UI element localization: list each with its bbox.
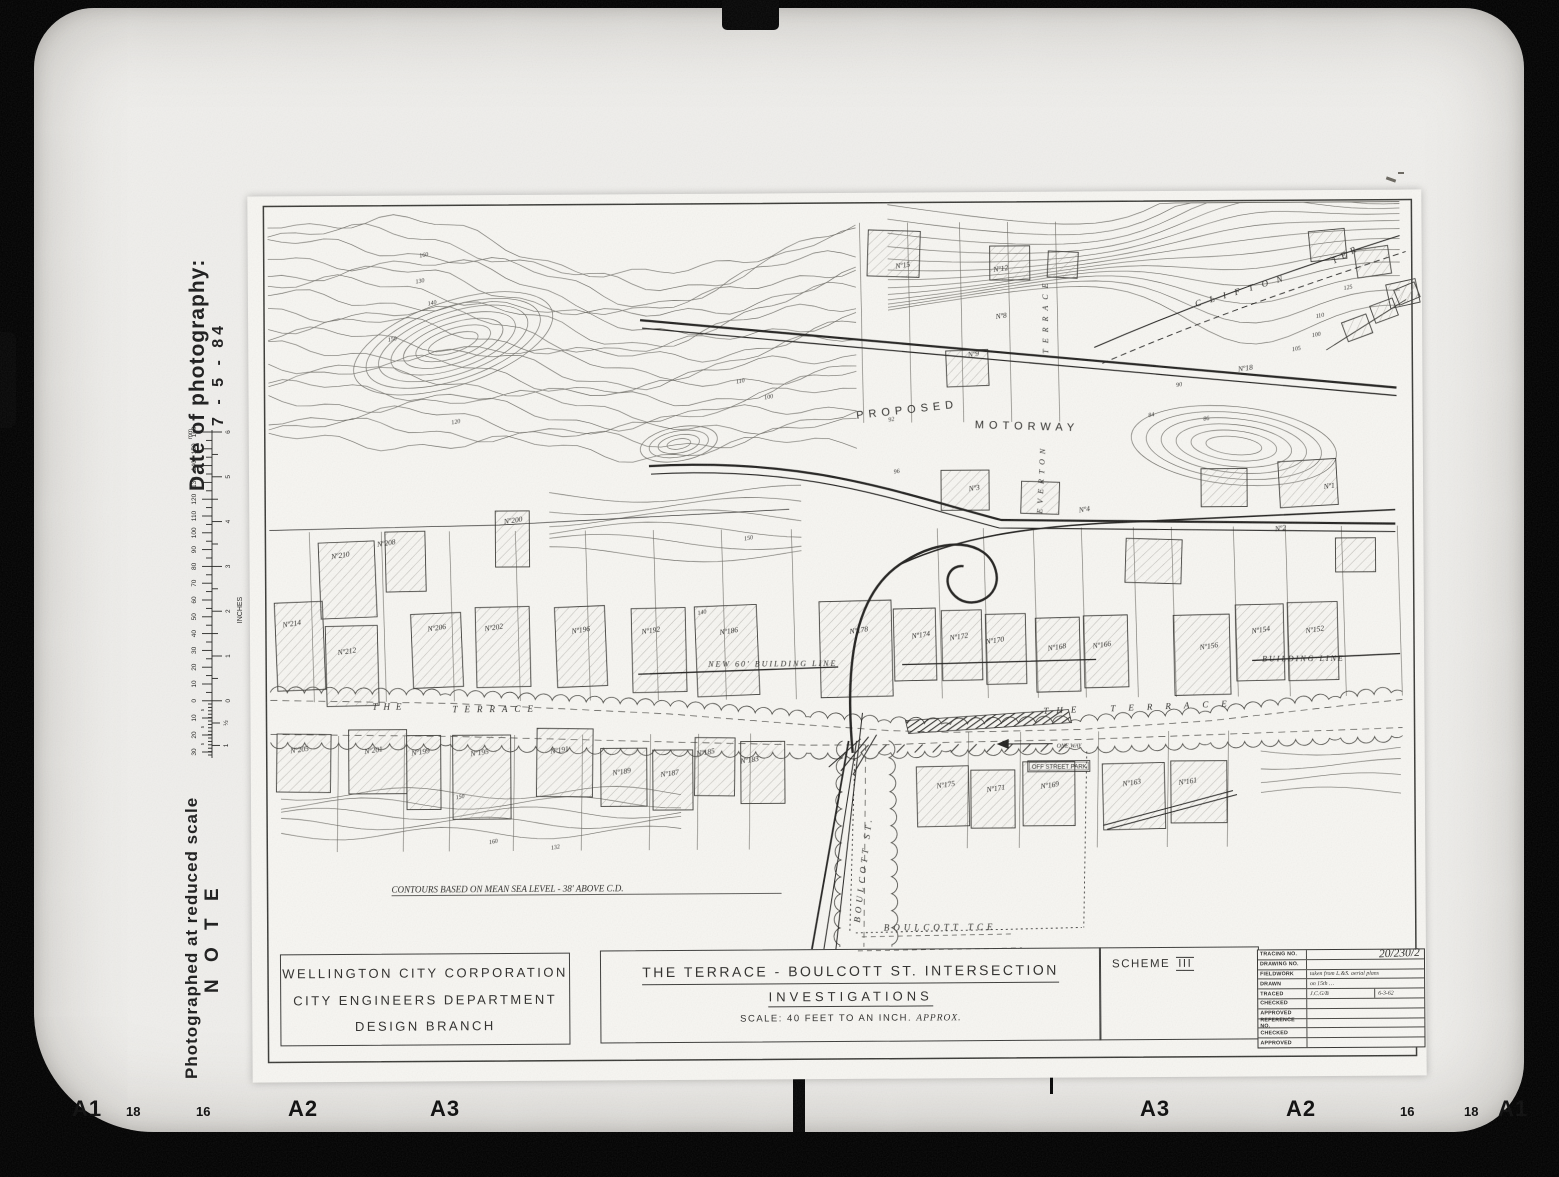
film-frame-marker: A2 <box>288 1096 318 1122</box>
contour <box>549 485 801 503</box>
building-footprint <box>274 601 326 691</box>
note-title: N O T E <box>202 788 224 1088</box>
building-footprint <box>867 230 920 277</box>
reduced-scale-note: Photographed at reduced scale N O T E <box>182 788 224 1088</box>
ruler-number: 50 <box>191 613 198 621</box>
contour <box>268 272 856 338</box>
film-frame-marker: A3 <box>430 1096 460 1122</box>
street-label: TERRACE <box>1041 277 1050 353</box>
ruler-number: 5 <box>200 708 205 711</box>
contour <box>268 263 856 318</box>
ruler-number: 30 <box>191 646 198 654</box>
lot-line <box>859 223 863 423</box>
organisation-box: WELLINGTON CITY CORPORATION CITY ENGINEE… <box>280 953 571 1047</box>
contour <box>412 317 495 369</box>
scale-label: SCALE: 40 FEET TO AN INCH. <box>740 1013 912 1025</box>
record-value <box>1307 1003 1424 1004</box>
scheme-box: SCHEMEIII <box>1099 946 1260 1040</box>
contour <box>268 337 856 392</box>
contour <box>1205 434 1263 457</box>
film-frame-marker: 18 <box>1464 1104 1478 1119</box>
contour <box>355 280 551 407</box>
lot-hatch-tick <box>879 745 887 753</box>
ruler-number: ½ <box>222 720 230 726</box>
contour-value-label: 96 <box>893 469 900 476</box>
contour <box>268 236 856 309</box>
building-footprint <box>985 614 1027 685</box>
building-footprint <box>1125 538 1182 584</box>
contour <box>549 497 801 515</box>
contour <box>549 533 801 550</box>
building-footprint <box>1235 604 1285 681</box>
record-label: CHECKED <box>1258 1030 1306 1036</box>
building-footprint <box>941 610 983 681</box>
ruler-number: 0 <box>191 699 198 703</box>
record-value: taken from L.&S. aerial plans <box>1307 970 1424 977</box>
ruler-number: 40 <box>191 630 198 638</box>
tracing-number: 20/230/2 <box>1379 947 1420 961</box>
org-line-2: CITY ENGINEERS DEPARTMENT <box>281 991 569 1008</box>
building-footprint <box>536 728 593 797</box>
contour <box>268 254 856 316</box>
ruler-number: 140 <box>191 460 198 471</box>
house-number-label: Nº1 <box>1322 480 1335 491</box>
note-text: Photographed at reduced scale <box>182 788 202 1088</box>
building-footprint <box>1171 761 1227 823</box>
record-value: on 15th … <box>1307 980 1424 987</box>
lot-hatch-tick <box>915 744 923 752</box>
contour-value-label: 130 <box>415 278 425 286</box>
contour-value-label: 140 <box>427 299 437 308</box>
building-footprint <box>554 606 607 688</box>
ruler-number: 5 <box>200 742 205 745</box>
ruler-number: 2 <box>225 609 232 613</box>
record-table-row: APPROVED <box>1258 1038 1424 1048</box>
film-frame-marker: A1 <box>1498 1096 1528 1122</box>
contour <box>888 262 1400 300</box>
record-date: 6-3-62 <box>1374 989 1424 998</box>
contour <box>647 426 711 462</box>
lot-hatch-tick <box>1023 744 1031 752</box>
record-label: DRAWN <box>1258 981 1306 987</box>
dust-speck <box>1398 172 1404 174</box>
contour-value-label: 100 <box>764 394 774 402</box>
ruler-number: 70 <box>191 579 198 587</box>
building-footprint <box>694 604 760 696</box>
record-value <box>1307 1013 1424 1014</box>
street-label: TERRACE <box>452 704 540 715</box>
building-footprint <box>325 625 379 706</box>
building-footprint <box>971 770 1015 828</box>
building-footprint <box>893 608 937 681</box>
street-label: MOTORWAY <box>975 419 1080 434</box>
boulcott-east-frontage <box>889 741 898 947</box>
house-number-label: Nº18 <box>1236 362 1253 373</box>
lot-line <box>1397 526 1402 696</box>
ruler-number: 110 <box>191 510 198 521</box>
building-footprint <box>1173 614 1231 695</box>
house-number-label: Nº2 <box>1273 523 1287 534</box>
contour <box>549 521 801 539</box>
ruler-number: 10 <box>191 714 198 722</box>
lot-hatch-tick <box>933 744 941 752</box>
drawing-subtitle: INVESTIGATIONS <box>769 988 933 1007</box>
house-number-label: Nº4 <box>1077 504 1091 515</box>
map-labels: PROPOSEDMOTORWAYTHETERRACETHETERRACEBOUL… <box>279 242 1366 936</box>
contour <box>549 509 801 526</box>
boulcott-west-frontage <box>833 741 844 947</box>
contour-value-label: 150 <box>387 336 397 344</box>
contour <box>1261 747 1401 755</box>
contour <box>341 271 565 416</box>
building-footprint <box>601 748 647 806</box>
ruler-number: 120 <box>191 493 198 504</box>
contour <box>666 437 691 451</box>
street-label: ONE WAY <box>1057 744 1082 750</box>
film-frame-marker: A3 <box>1140 1096 1170 1122</box>
contour-value-label: 160 <box>419 252 429 260</box>
scheme-number: III <box>1176 957 1194 971</box>
contour <box>383 299 522 388</box>
film-ruler: 1601501401301201101009080706050403020100… <box>178 420 252 785</box>
film-frame-marker: 16 <box>196 1104 210 1119</box>
drawing-record-table: TRACING NO.20/230/2DRAWING NO.FIELDWORKt… <box>1257 948 1426 1048</box>
contour-value-label: 132 <box>551 844 561 852</box>
building-footprint <box>475 606 531 687</box>
contour <box>267 221 855 293</box>
ruler-number: 3 <box>225 564 232 568</box>
lot-hatch-tick <box>987 744 995 752</box>
ruler-number: 1 <box>225 654 232 658</box>
contour <box>1190 426 1279 464</box>
film-frame-marker: 16 <box>1400 1104 1414 1119</box>
street-label: BOULCOTT ST. <box>852 815 874 923</box>
building-footprint <box>653 750 693 810</box>
scheme-label: SCHEME <box>1112 958 1170 970</box>
building-footprint <box>694 738 735 796</box>
building-footprint <box>1083 615 1129 688</box>
contour <box>549 545 801 563</box>
building-footprint <box>741 741 785 803</box>
building-footprint <box>1287 602 1339 681</box>
contour-value-label: 100 <box>1311 332 1321 340</box>
contour <box>1261 787 1401 794</box>
ruler-number: 5 <box>200 725 205 728</box>
record-label: DRAWING NO. <box>1258 961 1306 967</box>
contour <box>426 327 481 360</box>
lot-line <box>791 529 796 699</box>
building-footprint <box>1047 251 1078 278</box>
building-footprint <box>990 246 1030 280</box>
record-label: APPROVED <box>1258 1010 1306 1016</box>
contour <box>888 274 1400 305</box>
record-label: FIELDWORK <box>1258 971 1306 977</box>
film-left-bump <box>0 332 16 428</box>
ruler-number: 130 <box>191 477 198 488</box>
street-label: BOULCOTT TCE <box>884 922 997 933</box>
ruler-number: 4 <box>225 519 232 523</box>
ruler-number: 1 <box>223 743 230 747</box>
building-footprint <box>916 766 969 827</box>
scale-note: APPROX. <box>916 1013 961 1023</box>
contour <box>281 826 681 840</box>
building-footprint <box>819 600 893 698</box>
ruler-number: 5 <box>225 475 232 479</box>
drawing-sheet: PROPOSEDMOTORWAYTHETERRACETHETERRACEBOUL… <box>247 189 1426 1082</box>
record-value <box>1307 964 1424 965</box>
record-label: TRACED <box>1258 991 1306 997</box>
record-label: TRACING NO. <box>1258 952 1306 958</box>
building-footprint <box>1102 762 1166 829</box>
contour-value-label: 110 <box>736 378 746 385</box>
lot-hatch-tick <box>861 745 869 753</box>
contour <box>637 420 720 467</box>
film-frame-marker: 18 <box>126 1104 140 1119</box>
contour-value-label: 125 <box>1343 284 1353 292</box>
lot-line <box>649 734 652 850</box>
building-footprint <box>1201 468 1247 506</box>
street-label: PROPOSED <box>856 399 959 422</box>
ruler-number: 60 <box>191 596 198 604</box>
ruler-number: 100 <box>191 527 198 538</box>
record-value <box>1307 1042 1424 1043</box>
ruler-number: 80 <box>191 562 198 570</box>
building-footprint <box>1335 538 1375 572</box>
contour-value-label: 92 <box>888 417 895 424</box>
motorway-line <box>640 316 1396 393</box>
contour <box>269 430 857 465</box>
pedestrian-crossing-hatch <box>905 710 1071 734</box>
ruler-number: 90 <box>191 546 198 554</box>
title-box: THE TERRACE - BOULCOTT ST. INTERSECTION … <box>600 947 1102 1043</box>
lot-hatch-tick <box>969 744 977 752</box>
film-frame-marker: A1 <box>72 1096 102 1122</box>
motorway-line <box>642 324 1396 401</box>
record-value: J.C.G/B <box>1307 990 1374 996</box>
contour-value-label: 105 <box>1292 346 1302 354</box>
ruler-number: INCHES <box>237 596 244 623</box>
record-value <box>1307 1022 1424 1023</box>
org-line-1: WELLINGTON CITY CORPORATION <box>281 965 569 982</box>
record-label: APPROVED <box>1258 1040 1306 1046</box>
ruler-number: 30 <box>191 748 198 756</box>
contour-value-label: 86 <box>1203 416 1210 423</box>
building-footprint <box>349 730 407 794</box>
contour-value-label: 120 <box>451 419 461 427</box>
one-way-arrowhead <box>997 739 1009 749</box>
record-label: CHECKED <box>1258 1001 1306 1007</box>
film-top-tab <box>722 0 779 30</box>
contour <box>1261 759 1401 770</box>
contour-value-label: 90 <box>1176 382 1183 389</box>
microfilm-scan: { "side": { "photo_date_label": "Date of… <box>0 0 1559 1177</box>
org-line-3: DESIGN BRANCH <box>281 1017 569 1034</box>
building-footprint <box>631 607 687 692</box>
contour-value-label: 84 <box>1148 411 1155 419</box>
drawing-title: THE TERRACE - BOULCOTT ST. INTERSECTION <box>642 962 1059 986</box>
contour-value-label: 150 <box>744 535 754 543</box>
ruler-svg: 1601501401301201101009080706050403020100… <box>178 420 252 780</box>
lot-line <box>337 736 340 852</box>
house-number-label: Nº3 <box>967 483 981 494</box>
registration-tick <box>1050 1076 1053 1094</box>
record-table-row: TRACING NO.20/230/2 <box>1258 949 1424 960</box>
contour <box>1261 773 1401 783</box>
street-label: TERRACE <box>1110 698 1240 713</box>
survey-line <box>811 741 850 949</box>
contour <box>268 304 856 354</box>
ruler-number: mm <box>188 429 194 439</box>
house-number-label: Nº8 <box>994 310 1008 321</box>
ruler-number: 6 <box>225 430 232 434</box>
lot-hatch-tick <box>951 744 959 752</box>
lot-hatch-tick <box>1041 744 1049 752</box>
ruler-number: 10 <box>191 680 198 688</box>
scheme-alignment-lines <box>268 236 1410 953</box>
lot-hatch-tick <box>897 745 905 753</box>
contour-value-label: 160 <box>489 839 499 847</box>
building-footprint <box>276 734 331 793</box>
ruler-number: 150 <box>191 443 198 454</box>
contour <box>268 364 856 408</box>
contour-value-label: 110 <box>1315 313 1325 320</box>
building-footprint <box>1035 617 1081 692</box>
lot-line <box>449 735 452 851</box>
ruler-number: 20 <box>191 731 198 739</box>
street-label: CONTOURS BASED ON MEAN SEA LEVEL - 38' A… <box>392 883 624 894</box>
ruler-number: 0 <box>225 699 232 703</box>
ruler-number: 20 <box>191 663 198 671</box>
lot-line <box>513 735 516 851</box>
street-label: THE <box>372 702 407 712</box>
film-frame-marker: A2 <box>1286 1096 1316 1122</box>
record-value <box>1307 1032 1424 1033</box>
